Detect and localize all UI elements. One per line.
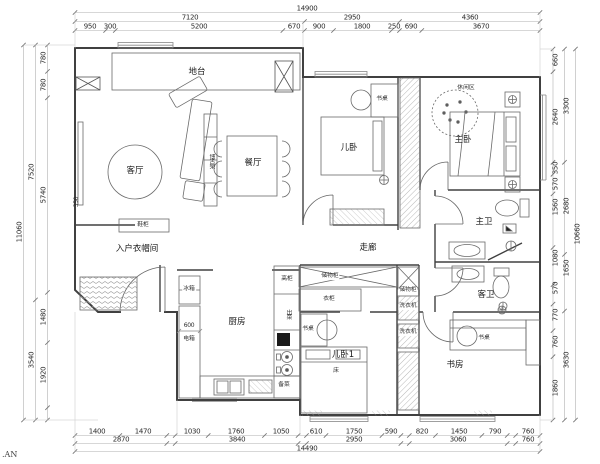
label-wardrobe: 衣柜 <box>322 297 336 303</box>
label-washer-2: 洗衣机 <box>398 330 417 336</box>
dim-bot-row1-7: 590 <box>385 429 397 436</box>
dim-top-row2-0: 7120 <box>182 15 199 22</box>
dim-right-mid-3: 3630 <box>564 352 571 369</box>
dim-bot-row1-3: 1760 <box>228 429 245 436</box>
dim-right-inner-3: 570 <box>553 178 560 190</box>
dim-bot-row2-2: 2950 <box>346 437 363 444</box>
label-tall-cabinet: 高柜 <box>280 277 294 283</box>
label-prep: 备菜 <box>278 383 290 389</box>
dim-left-mid-0: 7520 <box>29 164 36 181</box>
storage-cabinet-long <box>299 267 397 287</box>
dim-right-inner-6: 570 <box>553 282 560 294</box>
dim-right-inner-9: 1860 <box>553 380 560 397</box>
room-label-corridor: 走廊 <box>359 244 376 253</box>
master-wardrobe <box>400 78 420 228</box>
windows <box>118 43 546 422</box>
master-bath-fixtures <box>449 199 529 259</box>
dim-bot-row1-0: 1400 <box>89 429 106 436</box>
dim-left-inner-4: 1920 <box>41 367 48 384</box>
label-desk-kid: 书桌 <box>376 97 388 103</box>
dim-left-total: 11060 <box>17 222 24 243</box>
watermark-text: .AN <box>2 450 17 459</box>
tv-cabinet <box>78 122 83 205</box>
dim-inline-living: 350 <box>74 197 80 208</box>
label-storage-2: 储物柜 <box>398 288 417 294</box>
label-storage-1: 储物柜 <box>320 274 339 280</box>
dim-bot-row1-10: 790 <box>489 429 501 436</box>
room-label-kitchen: 厨房 <box>228 318 245 327</box>
room-label-living: 客厅 <box>126 167 143 176</box>
dim-top-row3-4: 900 <box>313 24 325 31</box>
dim-bot-row2-3: 3060 <box>450 437 467 444</box>
dim-bot-row1-8: 820 <box>416 429 428 436</box>
dim-left-inner-2: 5740 <box>41 187 48 204</box>
dim-left-mid-1: 3540 <box>29 352 36 369</box>
label-washer-1: 洗衣机 <box>398 304 417 310</box>
label-leisure-zone: 休闲区 <box>457 86 474 92</box>
dim-top-row3-8: 3670 <box>473 24 490 31</box>
label-fridge: 冰箱 <box>182 287 196 293</box>
ceiling-symbol <box>380 176 389 185</box>
dim-bot-row1-4: 1050 <box>273 429 290 436</box>
dim-top-row3-2: 5200 <box>191 24 208 31</box>
room-label-platform: 地台 <box>188 68 205 77</box>
dim-right-mid-1: 2680 <box>564 198 571 215</box>
dim-top-row3-6: 250 <box>388 24 400 31</box>
kid-desk-chair <box>351 90 371 110</box>
dim-top-row3-7: 690 <box>405 24 417 31</box>
dim-right-inner-2: 350 <box>553 162 560 174</box>
room-label-dining: 餐厅 <box>244 159 261 168</box>
dim-bot-row1-11: 760 <box>522 429 534 436</box>
cloakroom-wardrobe <box>80 277 137 310</box>
dim-top-total: 14900 <box>297 6 318 13</box>
study-chair <box>457 326 477 346</box>
dim-bot-row1-5: 610 <box>310 429 322 436</box>
dim-right-inner-7: 770 <box>553 309 560 321</box>
dim-bot-row2-0: 2870 <box>113 437 130 444</box>
dim-inline-kitchen: 600 <box>184 323 195 329</box>
columns <box>76 61 293 92</box>
label-elec-box: 电箱 <box>183 337 195 343</box>
floor-plan-canvas: 14900 7120 2950 4360 950 300 5200 670 90… <box>0 0 600 464</box>
dim-left-inner-0: 780 <box>41 52 48 64</box>
dim-top-row3-5: 1800 <box>354 24 371 31</box>
dim-right-inner-1: 2640 <box>553 109 560 126</box>
outer-walls <box>75 48 540 415</box>
room-label-master: 主卧 <box>454 136 471 145</box>
label-shoe-cabinet: 鞋柜 <box>137 223 149 229</box>
dim-right-inner-0: 660 <box>553 54 560 66</box>
dim-right-inner-8: 760 <box>553 336 560 348</box>
label-desk-kid1: 书桌 <box>302 327 314 333</box>
room-label-kid-bedroom: 儿卧 <box>340 144 357 153</box>
dim-bot-row1-9: 1450 <box>451 429 468 436</box>
kid-wardrobe <box>330 209 384 225</box>
label-curio-shelf: 博古架 <box>207 154 213 168</box>
room-label-guest-bath: 客卫 <box>477 291 494 300</box>
dim-left-inner-3: 1480 <box>41 309 48 326</box>
furniture <box>78 53 540 413</box>
label-desk-study: 书桌 <box>478 336 490 342</box>
floorplan-drawing <box>0 0 600 464</box>
dim-top-row3-0: 950 <box>84 24 96 31</box>
label-serving: 出菜 <box>283 309 291 319</box>
switch-symbol <box>498 306 506 314</box>
dim-left-inner-1: 780 <box>41 79 48 91</box>
dim-bot-row1-2: 1030 <box>184 429 201 436</box>
dim-top-row3-3: 670 <box>288 24 300 31</box>
kitchen-fixtures <box>177 266 300 398</box>
dim-bot-row1-6: 1750 <box>346 429 363 436</box>
dim-bot-row2-1: 3840 <box>229 437 246 444</box>
dim-right-mid-2: 1650 <box>564 260 571 277</box>
room-label-kid-bedroom1: 儿卧1 <box>332 351 354 360</box>
dim-bot-total: 14490 <box>297 446 318 453</box>
dim-right-total: 10660 <box>575 224 582 245</box>
room-label-master-bath: 主卫 <box>475 218 492 227</box>
guest-bath-fixtures <box>452 266 509 310</box>
dim-bot-row2-4: 760 <box>522 437 534 444</box>
platform-daybed <box>112 53 300 90</box>
leisure-rug <box>432 90 478 136</box>
dim-right-inner-5: 1080 <box>553 250 560 267</box>
label-bed: 床 <box>333 369 339 375</box>
dim-top-row2-2: 4360 <box>462 15 479 22</box>
dim-bot-row1-1: 1470 <box>135 429 152 436</box>
dim-top-row3-1: 300 <box>104 24 116 31</box>
dim-top-row2-1: 2950 <box>344 15 361 22</box>
dim-right-inner-4: 1560 <box>553 199 560 216</box>
room-label-study: 书房 <box>446 361 463 370</box>
room-label-cloakroom: 入户衣帽间 <box>116 245 159 254</box>
dim-right-mid-0: 3300 <box>564 98 571 115</box>
